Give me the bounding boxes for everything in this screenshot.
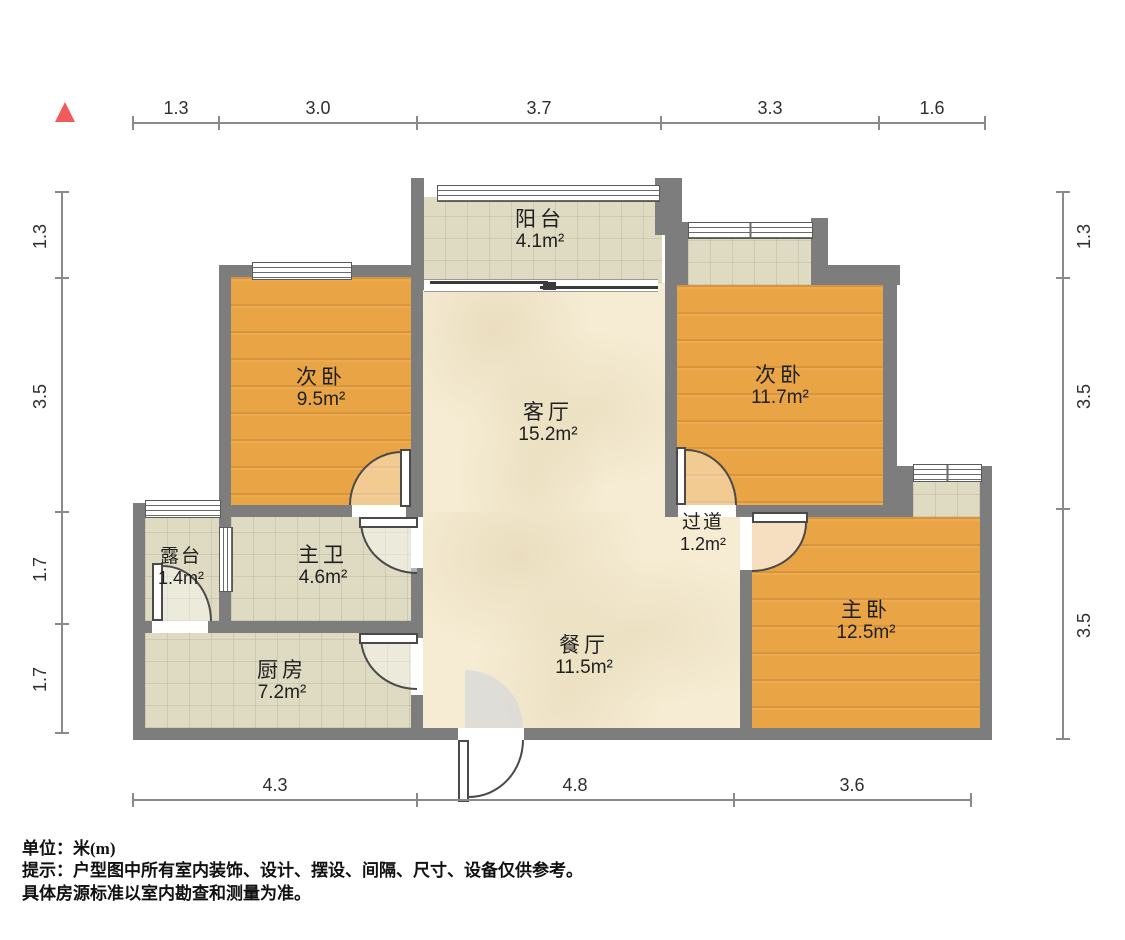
dim-line-left [61,192,63,733]
dim-tick [970,793,972,807]
sliding-door-panel [430,281,548,284]
bedroom-left-door-leaf [400,449,411,507]
room-label-living: 客厅 15.2m² [478,400,618,447]
dim-tick [55,277,69,279]
dim-tick [733,793,735,807]
room-area: 1.2m² [663,534,743,556]
opening-entry [458,728,524,740]
floor-alcove-right [913,480,980,517]
north-arrow-icon [55,102,75,122]
room-label-bedroom-right: 次卧 11.7m² [708,363,852,410]
room-name: 厨房 [212,658,352,682]
dim-label-right: 3.5 [1074,613,1095,638]
dim-tick [416,793,418,807]
dim-label-bottom: 4.3 [262,775,287,796]
room-area: 15.2m² [478,424,618,447]
room-area: 1.4m² [143,568,219,590]
master-door-leaf [752,512,808,523]
dim-label-right: 3.5 [1074,384,1095,409]
dim-tick [878,116,880,130]
window-alcove-topright [688,222,813,239]
sliding-door-handle [543,282,556,290]
opening-bedroom-left [352,505,406,517]
dim-tick [218,116,220,130]
room-area: 11.7m² [708,387,852,410]
dim-tick [55,732,69,734]
kitchen-door-leaf [359,633,418,644]
room-name: 主卫 [253,543,393,567]
room-label-balcony: 阳台 4.1m² [470,207,610,254]
floor-alcove-topright [688,237,811,285]
room-area: 12.5m² [796,622,936,645]
room-label-hallway: 过道 1.2m² [663,512,743,555]
dim-line-bottom [133,799,971,801]
dim-label-left: 1.7 [30,557,51,582]
room-name: 客厅 [478,400,618,424]
dim-tick [132,116,134,130]
dim-tick [1056,738,1070,740]
dim-tick [660,116,662,130]
floor-plan-canvas: 阳台 4.1m² 次卧 9.5m² 客厅 15.2m² 次卧 11.7m² 露台… [0,0,1125,940]
dim-tick [984,116,986,130]
room-area: 11.5m² [514,657,654,680]
wall-bottom-outer [133,728,992,740]
dim-label-right: 1.3 [1074,224,1095,249]
floor-living-room [423,283,665,512]
dim-label-top: 3.0 [305,98,330,119]
dim-label-left: 3.5 [30,384,51,409]
room-label-kitchen: 厨房 7.2m² [212,658,352,705]
entry-door-arc [469,740,524,798]
dim-tick [1056,191,1070,193]
room-label-master: 主卧 12.5m² [796,598,936,645]
room-area: 4.6m² [253,567,393,590]
window-terrace-bathroom [219,527,233,592]
dim-label-top: 3.3 [757,98,782,119]
dim-line-right [1062,192,1064,740]
dim-tick [416,116,418,130]
wall-bedroomright-right [883,265,897,517]
entry-door-leaf [458,740,469,802]
room-name: 次卧 [251,365,391,389]
dim-tick [55,191,69,193]
dim-line-top [133,122,985,124]
room-label-dining: 餐厅 11.5m² [514,633,654,680]
room-name: 次卧 [708,363,852,387]
room-name: 餐厅 [514,633,654,657]
room-name: 露台 [143,546,219,568]
room-label-bedroom-left: 次卧 9.5m² [251,365,391,412]
footer-disclaimer: 单位：米(m) 提示：户型图中所有室内装饰、设计、摆设、间隔、尺寸、设备仅供参考… [22,838,583,905]
dim-tick [1056,508,1070,510]
sliding-door-panel [540,286,658,289]
room-name: 过道 [663,512,743,534]
dim-label-left: 1.3 [30,224,51,249]
footer-unit-line: 单位：米(m) [22,838,583,860]
dim-tick [55,511,69,513]
wall-bedroomleft-left [219,265,231,517]
dim-label-left: 1.7 [30,667,51,692]
room-area: 9.5m² [251,389,391,412]
dim-tick [55,623,69,625]
bathroom-door-leaf [359,517,418,528]
dim-label-top: 1.6 [919,98,944,119]
bedroom-right-door-leaf [676,447,686,505]
room-area: 7.2m² [212,682,352,705]
footer-tip-line2: 具体房源标准以室内勘查和测量为准。 [22,883,583,905]
room-label-terrace: 露台 1.4m² [143,546,219,589]
room-name: 阳台 [470,207,610,231]
wall-step-column [897,466,913,517]
room-area: 4.1m² [470,231,610,254]
window-terrace [145,500,221,518]
window-bedroom-left [252,262,352,280]
dim-label-top: 3.7 [526,98,551,119]
window-alcove-right [913,464,982,482]
dim-label-top: 1.3 [163,98,188,119]
wall-right-outer [980,466,992,740]
window-balcony [437,185,660,202]
room-label-bathroom: 主卫 4.6m² [253,543,393,590]
footer-tip-line: 提示：户型图中所有室内装饰、设计、摆设、间隔、尺寸、设备仅供参考。 [22,860,583,882]
opening-terrace [152,621,208,633]
wall-alcove-left-fill [677,222,688,285]
dim-tick [1056,277,1070,279]
dim-tick [132,793,134,807]
dim-label-bottom: 3.6 [839,775,864,796]
dim-label-bottom: 4.8 [562,775,587,796]
room-name: 主卧 [796,598,936,622]
